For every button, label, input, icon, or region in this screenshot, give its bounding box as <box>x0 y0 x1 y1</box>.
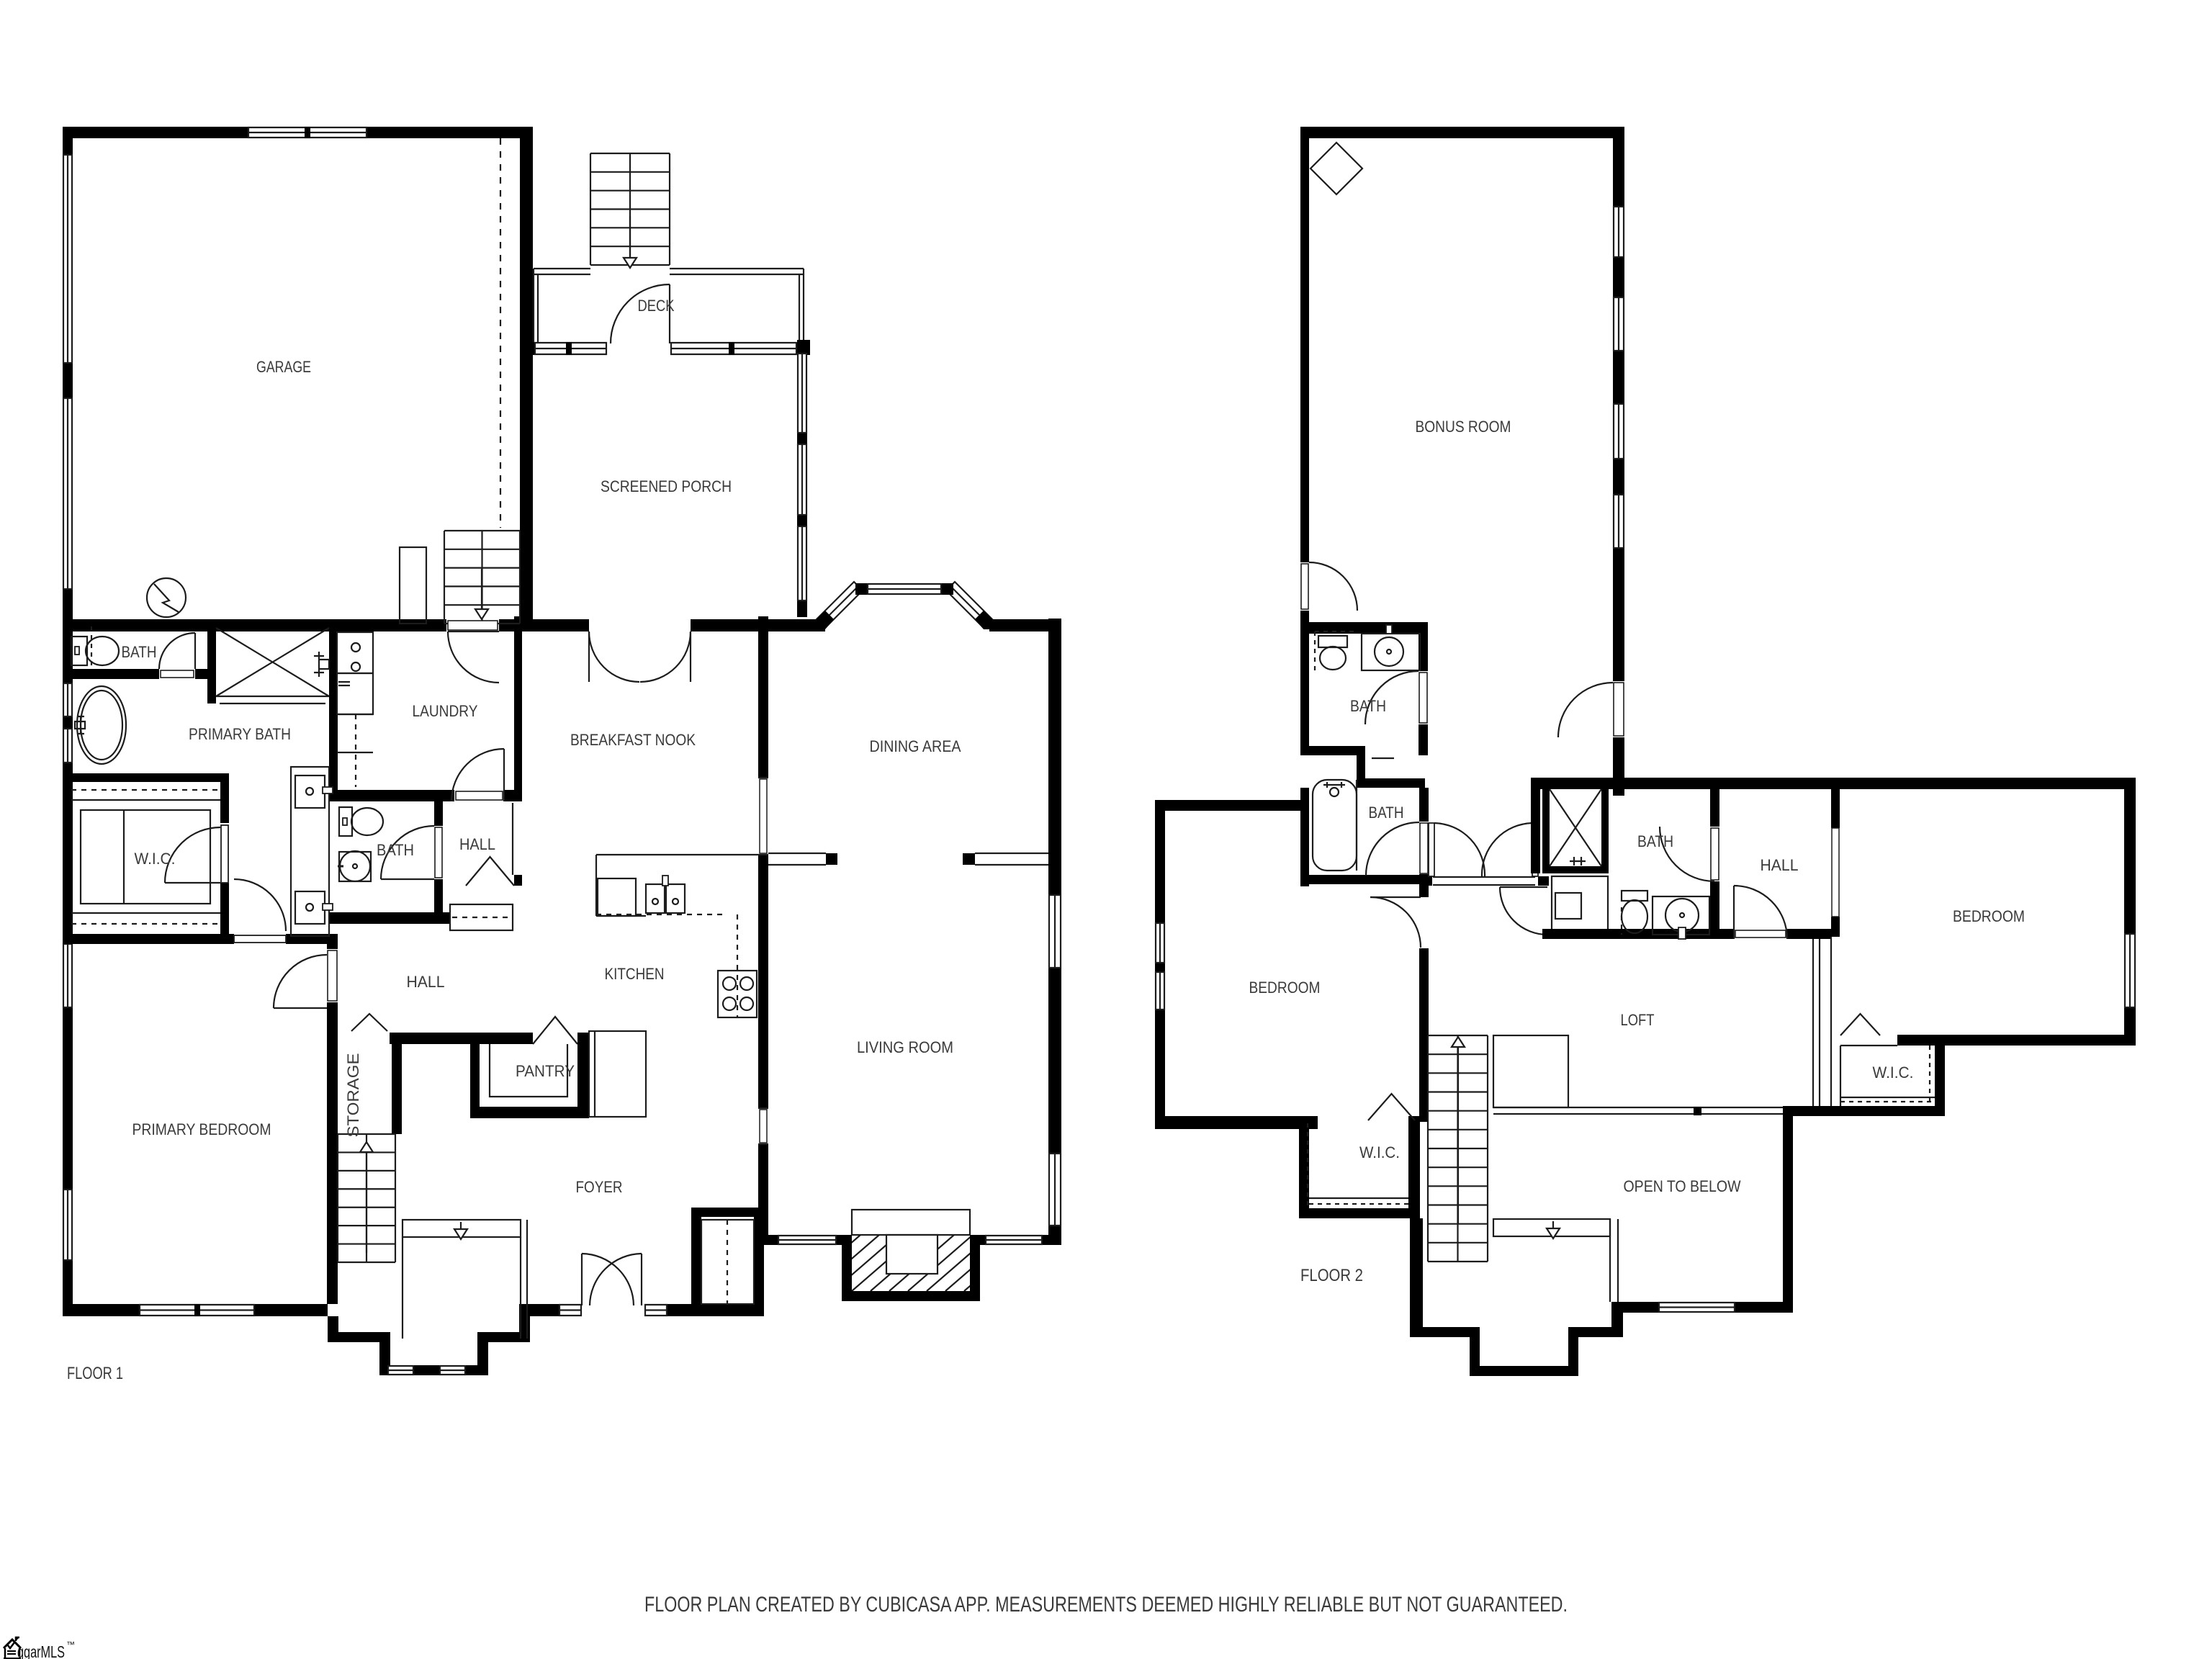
svg-text:PRIMARY BATH: PRIMARY BATH <box>189 725 291 743</box>
svg-text:BATH: BATH <box>1369 804 1404 822</box>
svg-text:ggarMLS: ggarMLS <box>17 1642 65 1659</box>
svg-text:GARAGE: GARAGE <box>256 358 311 376</box>
svg-text:HALL: HALL <box>459 835 495 853</box>
svg-text:HALL: HALL <box>1761 856 1799 874</box>
svg-text:FLOOR 1: FLOOR 1 <box>67 1364 123 1383</box>
svg-text:FLOOR 2: FLOOR 2 <box>1300 1266 1363 1285</box>
svg-text:STORAGE: STORAGE <box>344 1053 362 1138</box>
svg-text:HALL: HALL <box>407 973 445 991</box>
svg-text:BATH: BATH <box>377 841 414 859</box>
svg-text:KITCHEN: KITCHEN <box>605 965 665 983</box>
svg-text:PANTRY: PANTRY <box>516 1062 575 1080</box>
svg-text:BATH: BATH <box>1637 832 1673 850</box>
svg-text:FOYER: FOYER <box>576 1178 623 1196</box>
svg-text:BONUS ROOM: BONUS ROOM <box>1416 418 1511 436</box>
svg-text:PRIMARY BEDROOM: PRIMARY BEDROOM <box>132 1120 271 1138</box>
svg-text:OPEN TO BELOW: OPEN TO BELOW <box>1624 1177 1741 1195</box>
svg-text:W.I.C.: W.I.C. <box>1873 1064 1914 1082</box>
svg-text:LOFT: LOFT <box>1621 1011 1655 1029</box>
svg-text:BEDROOM: BEDROOM <box>1249 979 1321 997</box>
svg-text:DECK: DECK <box>638 297 675 315</box>
svg-text:BATH: BATH <box>1350 697 1386 715</box>
svg-text:W.I.C.: W.I.C. <box>1359 1143 1400 1161</box>
svg-text:W.I.C.: W.I.C. <box>135 850 176 868</box>
svg-text:BREAKFAST NOOK: BREAKFAST NOOK <box>570 731 696 749</box>
svg-text:BEDROOM: BEDROOM <box>1953 907 2025 925</box>
svg-text:SCREENED PORCH: SCREENED PORCH <box>601 477 732 495</box>
svg-text:LIVING ROOM: LIVING ROOM <box>857 1038 953 1056</box>
svg-text:DINING AREA: DINING AREA <box>870 737 961 755</box>
svg-text:™: ™ <box>66 1640 75 1650</box>
svg-text:BATH: BATH <box>122 643 157 661</box>
svg-text:FLOOR PLAN CREATED BY CUBICASA: FLOOR PLAN CREATED BY CUBICASA APP. MEAS… <box>644 1593 1568 1617</box>
svg-text:LAUNDRY: LAUNDRY <box>413 702 478 720</box>
